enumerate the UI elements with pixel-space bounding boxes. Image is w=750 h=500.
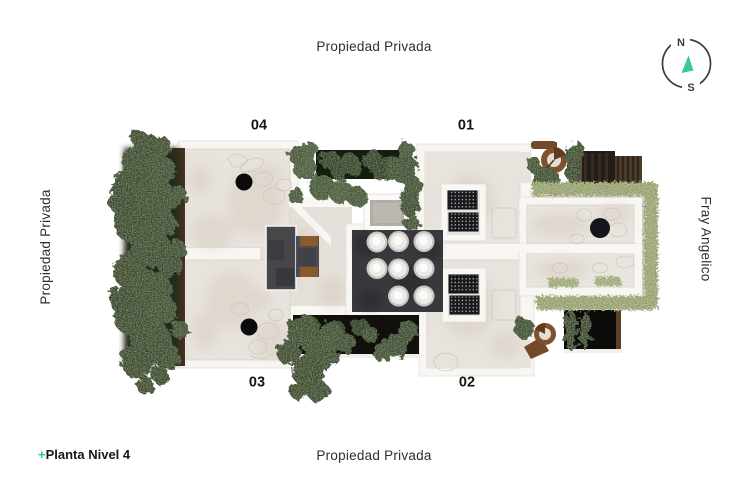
svg-text:Propiedad Privada: Propiedad Privada (38, 189, 53, 305)
svg-text:01: 01 (458, 118, 474, 134)
svg-text:S: S (687, 82, 694, 94)
svg-text:+Planta Nivel 4: +Planta Nivel 4 (38, 447, 131, 462)
svg-text:02: 02 (459, 375, 475, 391)
svg-text:N: N (677, 37, 685, 49)
svg-text:03: 03 (249, 375, 265, 391)
svg-text:Fray Angelico: Fray Angelico (699, 196, 714, 281)
svg-text:Propiedad Privada: Propiedad Privada (316, 448, 432, 463)
svg-text:Propiedad Privada: Propiedad Privada (316, 39, 432, 54)
svg-text:04: 04 (251, 118, 267, 134)
